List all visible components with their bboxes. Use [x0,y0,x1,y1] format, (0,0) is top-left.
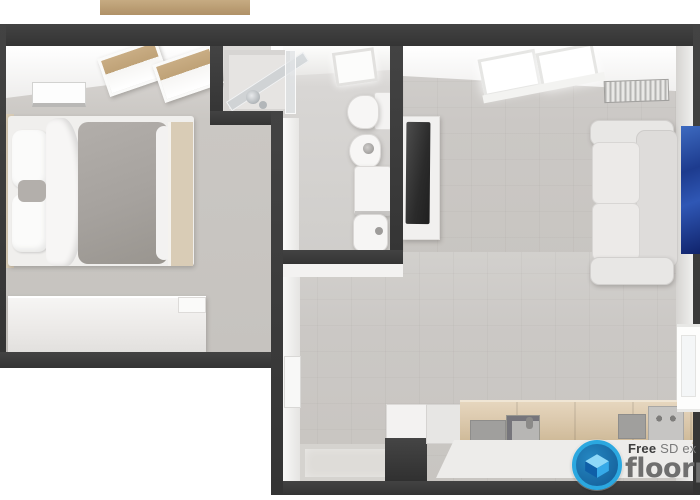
bathroom-sink [353,214,388,252]
bed-accent-pillow [18,180,46,202]
wall-north [0,24,700,46]
bedroom-dresser [8,296,206,352]
sofa-seat-cushion [592,203,640,261]
floor-plan-3d-render: Free SD ex floorp [0,0,700,500]
shower-knob [259,101,267,109]
bathroom-south-wall-face [283,264,403,277]
dresser-end-box [178,297,206,313]
bathroom-ceiling-light [332,47,378,87]
watermark-wordmark: floorp [625,453,700,484]
wall-west [0,24,6,368]
floorplanner-logo-icon [572,440,622,490]
isometric-cube-icon [583,451,611,479]
bathroom-sink-faucet [375,227,383,235]
bed-duvet [78,122,168,264]
radiator [604,79,670,103]
shower-glass-panel-side [285,50,296,114]
east-wall-window [677,324,700,412]
bed-footboard [168,122,193,266]
window-pane [681,335,696,397]
bathroom-west-wall-face [283,118,299,254]
bidet-faucet [363,143,374,154]
wall-bathroom-east [390,46,403,264]
bedroom-ceiling-light [32,82,86,107]
kitchen-cabinet-door [618,414,646,439]
tv [406,122,431,224]
kitchen-sink [506,415,540,442]
wall-interior-vertical [271,111,283,495]
bed-pillow [12,194,48,252]
toilet [347,95,379,129]
wall-bedroom-east-upper [210,46,223,118]
sofa-seat-cushion [592,142,640,204]
kitchen-faucet [526,417,533,429]
washing-machine [354,166,392,216]
kitchen-cabinet-door [470,420,506,442]
sofa-armrest [590,257,674,285]
sofa-backrest [636,130,678,268]
tall-cabinet-front [385,438,427,486]
watermark: Free SD ex floorp [572,438,700,494]
shower-head [246,90,260,104]
blue-wall-art [681,126,700,254]
tall-cabinet-top [386,404,430,442]
entry-door [284,356,301,408]
wall-bedroom-south [0,352,283,368]
wall-east [693,24,700,495]
wall-bathroom-south [283,250,403,264]
balcony-plank [100,0,250,15]
kitchen-cabinet [426,404,464,444]
